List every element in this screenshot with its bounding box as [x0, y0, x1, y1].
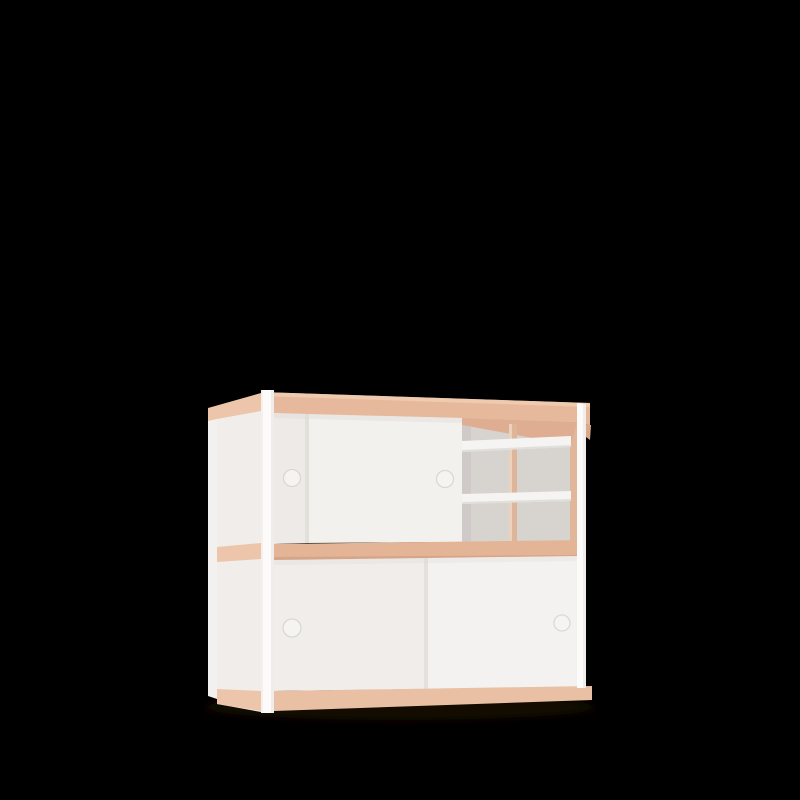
back-left-post — [208, 419, 217, 699]
handle-hole-lower-right-door — [554, 615, 570, 631]
handle-hole-upper-front-door — [437, 471, 454, 488]
render-canvas — [0, 0, 800, 800]
lower-section — [274, 556, 584, 691]
compartment-left-shadow — [462, 418, 471, 542]
upper-section — [274, 413, 462, 544]
front-left-post-edge — [261, 390, 263, 713]
front-right-post-shade — [583, 404, 586, 688]
cabinet — [208, 390, 592, 713]
shelf-compartment — [462, 418, 577, 542]
upper-door-gap-shadow — [305, 414, 309, 543]
front-left-post-shade — [271, 390, 274, 713]
handle-hole-lower-left-door — [283, 619, 301, 637]
left-side-face — [208, 393, 261, 712]
handle-hole-upper-back-door — [284, 470, 301, 487]
lower-door-gap-shadow — [424, 558, 428, 689]
cabinet-render — [0, 0, 800, 800]
